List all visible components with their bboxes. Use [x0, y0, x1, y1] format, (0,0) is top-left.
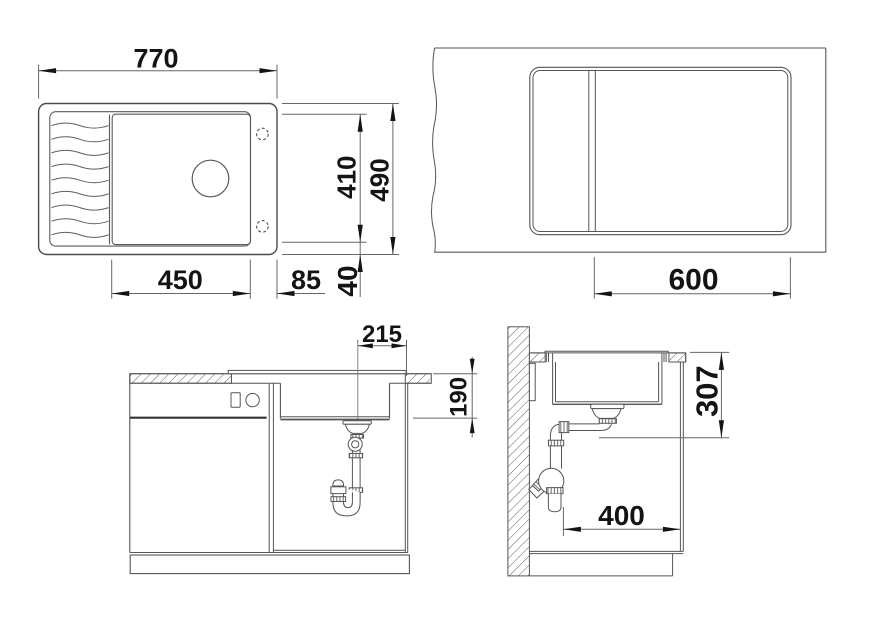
- svg-text:400: 400: [598, 500, 645, 531]
- svg-text:85: 85: [291, 265, 321, 295]
- svg-text:190: 190: [446, 377, 473, 417]
- svg-text:490: 490: [365, 158, 395, 201]
- svg-text:410: 410: [331, 156, 361, 199]
- svg-text:450: 450: [158, 265, 203, 295]
- svg-text:770: 770: [133, 43, 178, 73]
- svg-text:40: 40: [332, 265, 363, 296]
- svg-text:215: 215: [362, 321, 402, 348]
- svg-text:307: 307: [690, 365, 725, 417]
- svg-text:600: 600: [668, 263, 718, 296]
